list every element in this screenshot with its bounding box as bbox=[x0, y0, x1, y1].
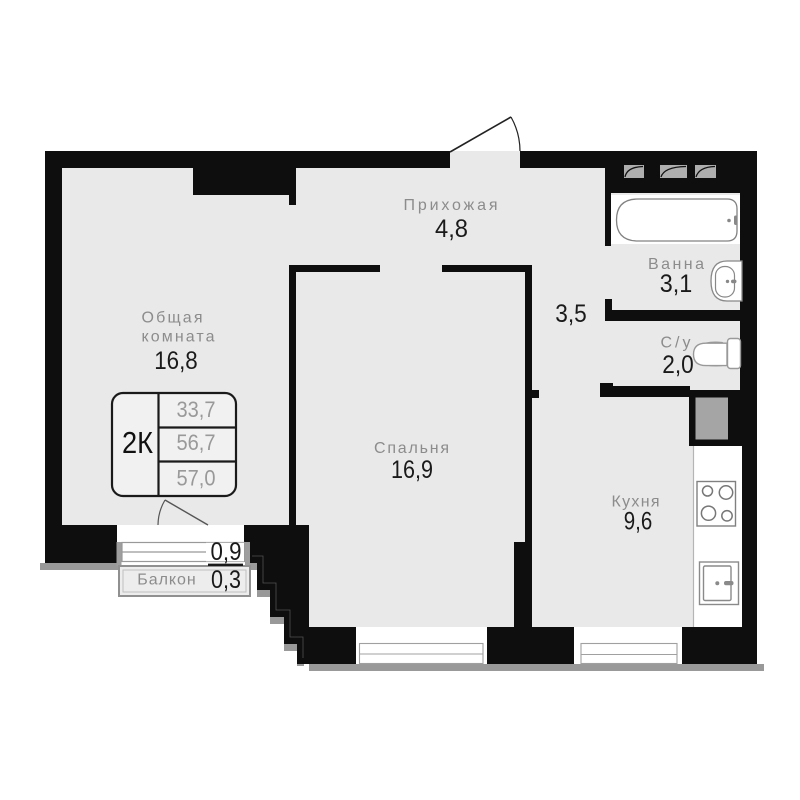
svg-text:3,1: 3,1 bbox=[660, 270, 693, 298]
svg-text:Общая: Общая bbox=[142, 310, 203, 327]
svg-text:0,9: 0,9 bbox=[211, 538, 242, 566]
svg-text:Спальня: Спальня bbox=[374, 440, 449, 457]
svg-text:0,3: 0,3 bbox=[211, 566, 241, 594]
svg-text:4,8: 4,8 bbox=[435, 215, 468, 243]
svg-text:Балкон: Балкон bbox=[137, 572, 196, 589]
svg-text:16,8: 16,8 bbox=[154, 347, 198, 375]
svg-text:57,0: 57,0 bbox=[177, 466, 216, 491]
svg-text:С/у: С/у bbox=[661, 335, 691, 352]
svg-text:2,0: 2,0 bbox=[662, 351, 694, 379]
svg-text:16,9: 16,9 bbox=[391, 456, 433, 484]
svg-text:3,5: 3,5 bbox=[555, 300, 587, 328]
svg-text:33,7: 33,7 bbox=[177, 397, 216, 422]
svg-text:9,6: 9,6 bbox=[624, 508, 653, 536]
svg-text:2К: 2К bbox=[122, 425, 153, 460]
svg-text:56,7: 56,7 bbox=[177, 430, 216, 455]
